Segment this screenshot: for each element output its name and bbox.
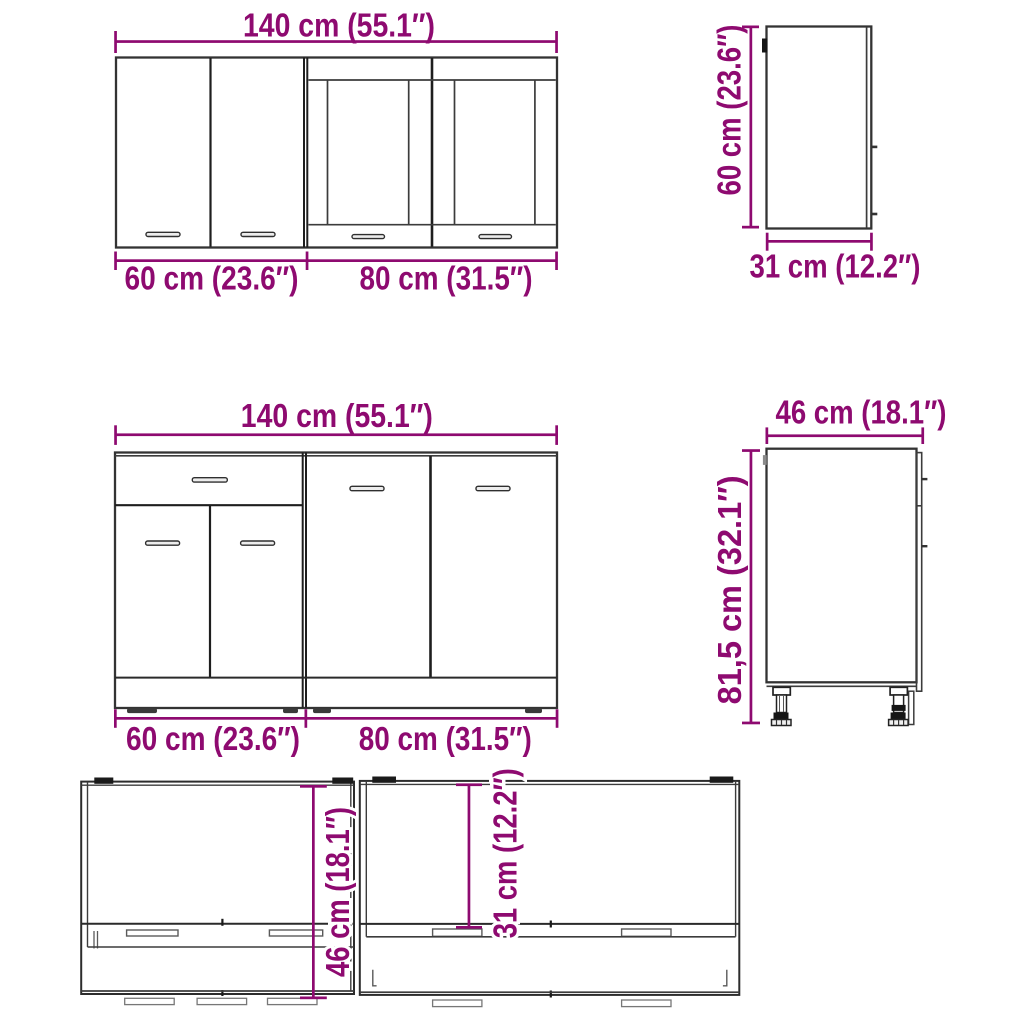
svg-text:31 cm (12.2″): 31 cm (12.2″) [750, 248, 921, 285]
svg-text:81,5 cm (32.1″): 81,5 cm (32.1″) [711, 475, 748, 704]
svg-text:140 cm (55.1″): 140 cm (55.1″) [243, 7, 435, 44]
svg-text:60 cm (23.6″): 60 cm (23.6″) [126, 720, 300, 757]
svg-text:80 cm (31.5″): 80 cm (31.5″) [359, 720, 532, 757]
svg-text:60 cm (23.6″): 60 cm (23.6″) [125, 260, 299, 297]
svg-text:46 cm (18.1″): 46 cm (18.1″) [319, 807, 356, 977]
svg-text:31 cm (12.2″): 31 cm (12.2″) [487, 768, 524, 938]
svg-text:46 cm (18.1″): 46 cm (18.1″) [776, 394, 947, 431]
svg-text:80 cm (31.5″): 80 cm (31.5″) [360, 260, 533, 297]
svg-text:140 cm (55.1″): 140 cm (55.1″) [241, 397, 433, 434]
svg-text:60 cm (23.6″): 60 cm (23.6″) [711, 25, 748, 196]
